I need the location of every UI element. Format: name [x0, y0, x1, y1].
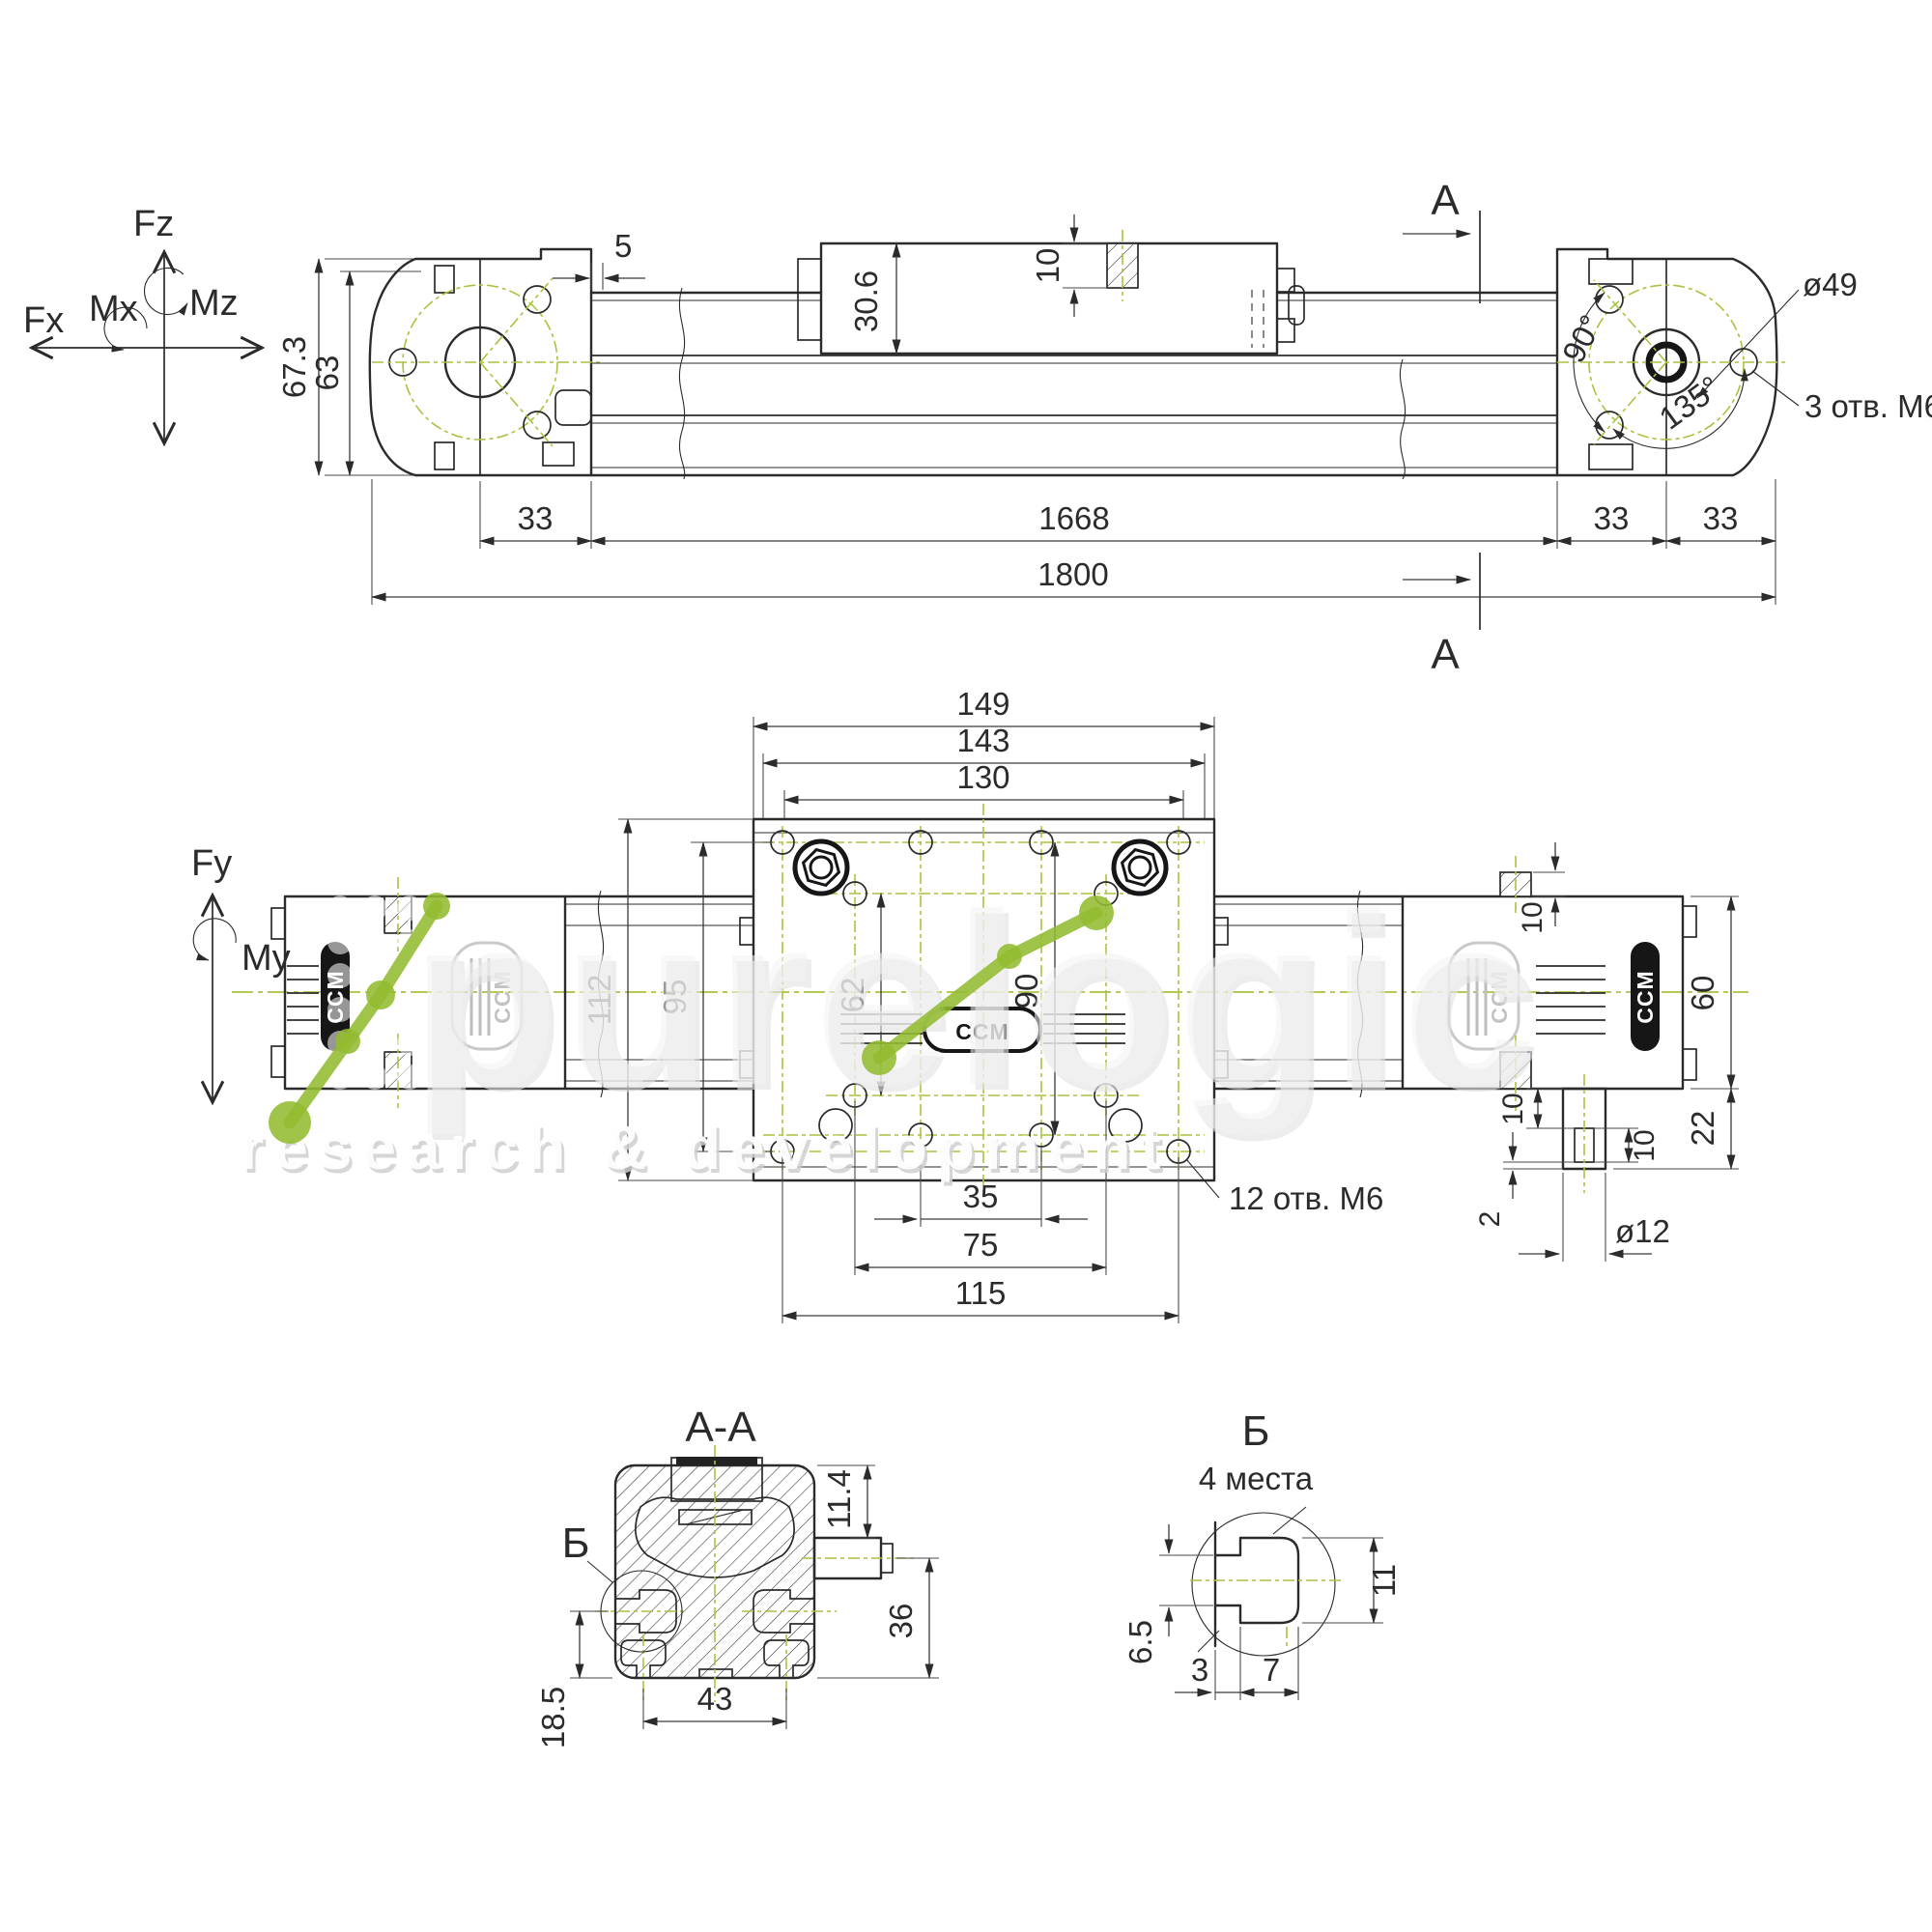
dim-3: 3: [1191, 1652, 1208, 1688]
dim-143: 143: [956, 723, 1009, 758]
dim-10-boss: 10: [1517, 901, 1548, 933]
dim-6-5: 6.5: [1122, 1620, 1158, 1664]
axis-label-my: My: [241, 938, 291, 979]
ccm-logo-text: CCM: [1633, 970, 1658, 1023]
axis-label-mz: Mz: [189, 283, 239, 324]
technical-drawing: Fz Mz Mx Fx 67.3 63: [0, 0, 1932, 1932]
dim-30-6: 30.6: [848, 270, 884, 332]
section-aa-title: A-A: [685, 1404, 756, 1451]
drawing-page: Fz Mz Mx Fx 67.3 63: [0, 0, 1932, 1932]
dim-1668: 1668: [1038, 500, 1109, 536]
dim-10-shaft: 10: [1497, 1093, 1529, 1124]
dim-33-right-inner: 33: [1594, 500, 1630, 536]
dim-60: 60: [1685, 976, 1720, 1011]
axis-label-fz: Fz: [133, 204, 174, 244]
ccm-logo-ghost-text: CCM: [490, 970, 515, 1023]
dim-115: 115: [955, 1275, 1007, 1311]
ccm-logo-ghost-text: CCM: [1487, 970, 1512, 1023]
dim-35: 35: [963, 1179, 999, 1214]
dim-2: 2: [1474, 1211, 1506, 1228]
dim-22: 22: [1685, 1111, 1720, 1147]
detail-b-title: Б: [1242, 1407, 1270, 1455]
dim-67-3: 67.3: [276, 336, 312, 398]
detail-mark-b: Б: [562, 1520, 590, 1567]
axis-label-mx: Mx: [89, 289, 138, 329]
axis-label-fy: Fy: [191, 843, 232, 884]
dim-33-left: 33: [518, 500, 554, 536]
dim-90: 90: [1009, 974, 1044, 1009]
dim-75: 75: [963, 1227, 999, 1263]
dim-95: 95: [657, 980, 693, 1015]
dim-33-right-outer: 33: [1703, 500, 1739, 536]
dim-62: 62: [835, 978, 870, 1013]
detail-b-subtitle: 4 места: [1199, 1461, 1314, 1496]
dim-18-5: 18.5: [535, 1687, 571, 1748]
dim-d49: ø49: [1803, 267, 1858, 302]
dim-7: 7: [1263, 1652, 1280, 1688]
dim-d12: ø12: [1615, 1213, 1670, 1249]
dim-43: 43: [697, 1681, 733, 1717]
dim-130: 130: [956, 759, 1009, 795]
dim-10-hole: 10: [1030, 248, 1065, 284]
note-12-holes-m6: 12 отв. М6: [1229, 1180, 1383, 1216]
section-label-a-bottom: A: [1431, 631, 1460, 678]
dim-149: 149: [956, 686, 1009, 722]
dim-36: 36: [883, 1604, 919, 1639]
dim-112: 112: [582, 975, 617, 1026]
note-3-holes-m6: 3 отв. М6: [1804, 388, 1932, 424]
dim-10-key: 10: [1629, 1129, 1661, 1161]
dim-11-4: 11.4: [821, 1469, 857, 1529]
section-label-a-top: A: [1431, 177, 1460, 224]
axis-label-fx: Fx: [23, 300, 64, 341]
dim-1800: 1800: [1037, 556, 1108, 592]
dim-11: 11: [1366, 1564, 1402, 1597]
dim-63: 63: [309, 355, 345, 391]
ccm-logo-center-text: CCM: [955, 1019, 1009, 1044]
ccm-logo-text: CCM: [323, 970, 348, 1023]
dim-5: 5: [614, 228, 632, 264]
